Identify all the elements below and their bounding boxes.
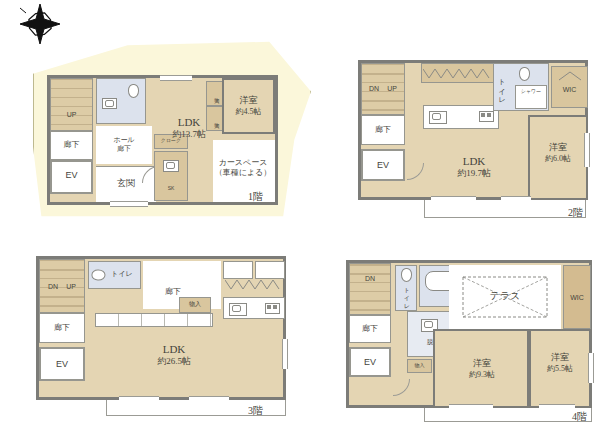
floor3-building: DN UP 廊下 EV トイレ 廊下 物入 [36, 256, 286, 400]
sink-icon [229, 303, 247, 316]
hanger-icon [225, 279, 283, 291]
terrace-hatch-icon [449, 265, 561, 329]
window [588, 353, 594, 383]
floor4-wic [563, 265, 591, 329]
floor4-western-room-a [433, 329, 529, 408]
floor3-ldk-label: LDK 約26.5帖 [129, 337, 219, 373]
floor1-plan: UP 廊下 EV ホール 廊下 玄関 クローク SK [33, 40, 311, 218]
stove-icon [479, 111, 494, 122]
floor2-balcony [424, 200, 586, 218]
floor4-tag: 4階 [572, 410, 587, 424]
floor2-closet [421, 63, 495, 83]
floor3-cabinet-row [95, 313, 213, 327]
floorplan-canvas: UP 廊下 EV ホール 廊下 玄関 クローク SK [0, 0, 600, 426]
floor3-storage [179, 297, 211, 313]
floor2-ldk-label: LDK 約19.7帖 [431, 149, 517, 185]
floor3-tag: 3階 [248, 404, 263, 418]
floor3-corridor [39, 313, 85, 343]
floor2-shower-room [515, 85, 547, 109]
floor2-staircase [361, 63, 405, 115]
sink-icon [163, 160, 179, 172]
sink-icon [102, 98, 117, 109]
floor1-elevator [50, 160, 93, 194]
sink-icon [429, 111, 447, 124]
floor2-tag: 2階 [568, 206, 583, 220]
floor4-balcony [424, 408, 592, 422]
window [282, 339, 288, 369]
toilet-icon [401, 268, 412, 282]
hanger-icon [423, 68, 493, 80]
toilet-icon [92, 270, 106, 281]
floor2-corridor [361, 115, 405, 145]
door-arc-icon [407, 163, 424, 180]
floor4-building: DN 廊下 EV トイレ 脱衣所 物入 物入 [346, 260, 592, 408]
window [160, 75, 192, 81]
floor1-western-room [222, 78, 275, 134]
floor4-staircase [349, 263, 391, 315]
floor2-building: DN UP 廊下 EV トイレ シャワー [358, 60, 588, 200]
floor1-car-space [213, 140, 275, 202]
window [110, 201, 148, 207]
floor1-staircase [50, 78, 93, 131]
stove-icon [265, 303, 280, 314]
floor1-cloak [154, 134, 188, 149]
hanger-icon [559, 71, 581, 81]
floor4-storage-a [407, 359, 432, 373]
door-arc-icon [393, 379, 410, 396]
floor4-western-room-b [529, 329, 591, 408]
floor3-closet-a [223, 261, 253, 279]
floor2-elevator [361, 149, 405, 181]
floor2-plan: DN UP 廊下 EV トイレ シャワー [358, 60, 592, 225]
floor4-corridor [349, 315, 391, 343]
floor1-tag: 1階 [248, 190, 263, 204]
window [584, 133, 590, 167]
floor1-corridor [50, 131, 93, 160]
floor4-terrace [449, 265, 561, 329]
floor3-elevator [39, 347, 85, 381]
floor3-plan: DN UP 廊下 EV トイレ 廊下 物入 [36, 256, 290, 422]
floor4-elevator [349, 347, 391, 377]
floor4-plan: DN 廊下 EV トイレ 脱衣所 物入 物入 [346, 260, 596, 426]
floor1-hall [96, 126, 152, 164]
floor1-sk-room [154, 151, 188, 201]
floor3-closet-b [255, 261, 285, 279]
floor2-western-room [528, 115, 588, 200]
floor1-building: UP 廊下 EV ホール 廊下 玄関 クローク SK [47, 75, 278, 205]
floor3-staircase [39, 259, 85, 313]
toilet-icon [519, 67, 530, 81]
toilet-icon [128, 84, 139, 98]
